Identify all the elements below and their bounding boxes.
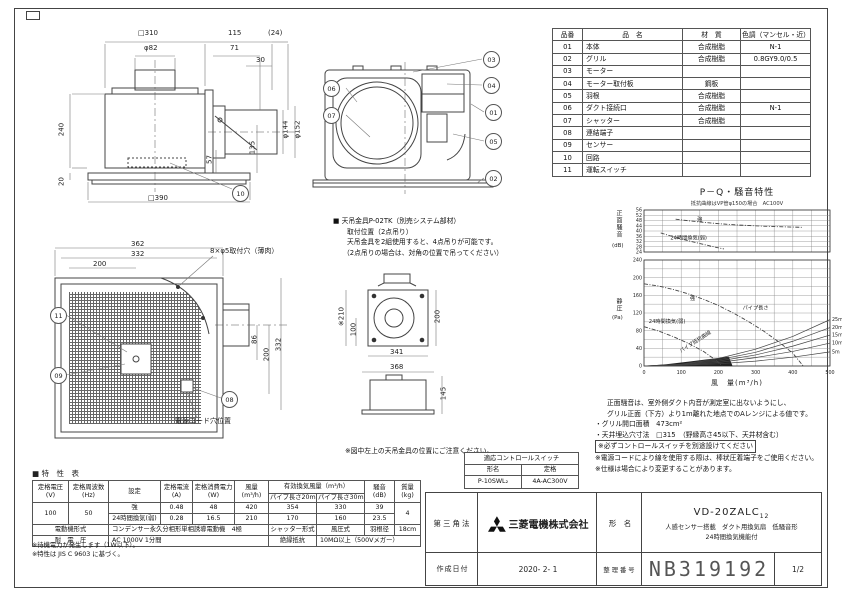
mount-view-linework [338, 272, 468, 450]
spec-cell: 50 [69, 503, 109, 525]
section-view-linework [295, 42, 540, 217]
spec-cell: 0.28 [161, 514, 193, 525]
parts-cell [683, 151, 741, 163]
pipe-label: 20m [832, 325, 842, 331]
parts-cell: N-1 [741, 102, 811, 114]
chart-note-6: ※電源コードにより線を使用する際は、棒状圧着端子をご使用ください。 [595, 453, 839, 464]
pressure-ytick: 80 [636, 328, 642, 334]
noise-axis-label: 正面騒音 [614, 210, 623, 238]
date-label: 作成日付 [437, 564, 469, 574]
model-cell: VD-20ZALC12 人感センサー搭載 ダクト用換気扇 低騒音形 24時間換気… [641, 492, 822, 555]
spec-cell: 18cm [395, 525, 421, 536]
drawing-sheet: { "parts_table": { "headers": ["品番", "品 … [0, 0, 842, 595]
spec-cell: 420 [235, 503, 269, 514]
model-label-cell: 形 名 [596, 492, 644, 555]
title-block: 第三角法 三菱電機株式会社 形 名 VD-20ZALC12 人感センサー搭載 ダ… [425, 492, 820, 584]
parts-row: 01本体合成樹脂N-1 [553, 41, 811, 53]
parts-cell: 合成樹脂 [683, 115, 741, 127]
parts-cell: センサー [583, 139, 683, 151]
number-label-cell: 整理番号 [596, 552, 644, 586]
parts-row: 07シャッター合成樹脂 [553, 115, 811, 127]
parts-table: 品番品 名材 質色調（マンセル・近）01本体合成樹脂N-102グリル合成樹脂0.… [552, 28, 811, 177]
parts-cell [741, 90, 811, 102]
spec-data-row: 10050強0.4848420354330394 [33, 503, 421, 514]
xtick: 500 [825, 370, 834, 376]
chart-annotation-0: パイプ長さ [743, 304, 769, 311]
spec-cell: コンデンサー永久分相形単相誘導電動機 4極 [109, 525, 269, 536]
company-cell: 三菱電機株式会社 [477, 492, 599, 555]
spec-table: 定格電圧(V)定格周波数(Hz)設定定格電流(A)定格消費電力(W)風量(m³/… [32, 480, 421, 547]
chart-note-7: ※仕様は場合により変更することがあります。 [595, 464, 839, 475]
pipe-label: 25m [832, 317, 842, 323]
parts-cell: 合成樹脂 [683, 41, 741, 53]
spec-cell: 定格電流(A) [161, 481, 193, 503]
parts-cell: 08 [553, 127, 583, 139]
parts-row: 03モーター [553, 65, 811, 77]
pressure-ytick: 120 [633, 311, 642, 317]
chart-title: P－Q・騒音特性 [700, 186, 775, 198]
spec-cell: 330 [317, 503, 365, 514]
company-name: 三菱電機株式会社 [509, 516, 589, 531]
dim-362: 362 [131, 241, 144, 248]
spec-cell: 23.5 [365, 514, 395, 525]
chart-notes: 正面騒音は、室外側ダクト内音が測定室に出ないようにし、 グリル正面（下方）より1… [595, 398, 839, 474]
pressure-ytick: 0 [639, 364, 642, 370]
spec-cell: 210 [235, 514, 269, 525]
side-view-dim-lines [70, 42, 295, 202]
balloon-09: 09 [50, 367, 67, 384]
balloon-10: 10 [232, 185, 249, 202]
spec-cell: 10MΩ以上（500Vメガー） [317, 536, 421, 547]
parts-cell: 合成樹脂 [683, 102, 741, 114]
spec-cell: 定格電圧(V) [33, 481, 69, 503]
parts-cell [683, 139, 741, 151]
grille-view-drawing: 362 332 200 8×φ5取付穴（薄肉） 86 200 332 11 09… [35, 240, 305, 454]
chart-subtitle: 抵抗曲線はVP管φ150の場合 AC100V [691, 199, 784, 207]
balloon-07: 07 [323, 107, 340, 124]
parts-cell: 本体 [583, 41, 683, 53]
pressure-ytick: 240 [633, 258, 642, 264]
spec-cell: シャッター形式 [269, 525, 317, 536]
parts-row: 05羽根合成樹脂 [553, 90, 811, 102]
grille-dim-lines [55, 248, 281, 418]
xaxis-label: 風 量(m³/h) [711, 379, 763, 387]
balloon-02: 02 [485, 170, 502, 187]
spec-cell: 騒音(dB) [365, 481, 395, 503]
spec-cell: 354 [269, 503, 317, 514]
spec-motor-row: 電動機形式コンデンサー永久分相形単相誘導電動機 4極シャッター形式風圧式羽根径1… [33, 525, 421, 536]
parts-cell: 03 [553, 65, 583, 77]
parts-cell: N-1 [741, 41, 811, 53]
parts-row: 10回路 [553, 151, 811, 163]
spec-note-2: ※特性は JIS C 9603 に基づく。 [32, 550, 139, 559]
bracket-note-line1: ■ 天吊金具P-02TK（別売システム部材） [333, 216, 593, 227]
spec-table-title: ■ 特 性 表 [32, 470, 79, 478]
parts-cell [741, 127, 811, 139]
bracket-note-line4: （2点吊りの場合は、対角の位置で吊ってください） [333, 248, 593, 259]
balloon-08: 08 [221, 391, 238, 408]
balloon-05: 05 [485, 133, 502, 150]
spec-cell: 設定 [109, 481, 161, 503]
spec-note-1: ※待機電力が発生します（1W以下）。 [32, 541, 139, 550]
bracket-note: ■ 天吊金具P-02TK（別売システム部材） 取付位置（2点吊り） 天吊金具を2… [333, 216, 593, 258]
spec-cell: 風圧式 [317, 525, 365, 536]
pq-series-0-label: 強 [690, 294, 696, 302]
parts-row: 09センサー [553, 139, 811, 151]
control-switch-table: 適応コントロールスイッチ 形名 定格 P-10SWL₂ 4A-AC300V [464, 452, 579, 489]
noise-series-0-label: 強 [697, 215, 703, 223]
bracket-note-line2: 取付位置（2点吊り） [333, 227, 593, 238]
spec-cell: 質量(kg) [395, 481, 421, 503]
spec-cell: 100 [33, 503, 69, 525]
corner-mark [26, 11, 40, 20]
parts-cell: 羽根 [583, 90, 683, 102]
pressure-ytick: 200 [633, 275, 642, 281]
projection-label: 第三角法 [434, 518, 472, 529]
spec-cell: 24時間換気(弱) [109, 514, 161, 525]
spec-header-row: 定格電圧(V)定格周波数(Hz)設定定格電流(A)定格消費電力(W)風量(m³/… [33, 481, 421, 494]
spec-cell: 0.48 [161, 503, 193, 514]
parts-cell: 04 [553, 78, 583, 90]
parts-cell: 07 [553, 115, 583, 127]
pq-chart: P－Q・騒音特性抵抗曲線はVP管φ150の場合 AC100V5652484440… [612, 186, 842, 402]
parts-cell: 品 名 [583, 29, 683, 41]
mount-holes-label: 8×φ5取付穴（薄肉） [210, 248, 278, 255]
model-label: 形 名 [609, 518, 632, 529]
spec-cell: 風量(m³/h) [235, 481, 269, 503]
spec-cell: 強 [109, 503, 161, 514]
parts-cell [741, 151, 811, 163]
parts-cell: ダクト接続口 [583, 102, 683, 114]
model-desc-1: 人感センサー搭載 ダクト用換気扇 低騒音形 [665, 522, 797, 531]
parts-cell: 材 質 [683, 29, 741, 41]
parts-cell: 01 [553, 41, 583, 53]
pressure-axis-label: 静圧 [614, 298, 623, 312]
parts-row: 11運転スイッチ [553, 164, 811, 176]
control-switch-rating: 4A-AC300V [522, 476, 579, 489]
xtick: 400 [788, 370, 797, 376]
balloon-06: 06 [323, 80, 340, 97]
parts-cell: 合成樹脂 [683, 90, 741, 102]
parts-cell: シャッター [583, 115, 683, 127]
parts-cell: 05 [553, 90, 583, 102]
chart-note-2: グリル正面（下方）より1m離れた地点でのAレンジによる値です。 [595, 409, 839, 420]
control-switch-title: 適応コントロールスイッチ [465, 453, 579, 465]
side-view-linework [50, 30, 300, 225]
parts-cell: 09 [553, 139, 583, 151]
date-cell: 2020- 2- 1 [477, 552, 599, 586]
projection-cell: 第三角法 [425, 492, 480, 555]
parts-cell [683, 127, 741, 139]
grille-notch-fill [161, 278, 225, 334]
spec-cell: 電動機形式 [33, 525, 109, 536]
spec-cell: 170 [269, 514, 317, 525]
spec-cell: 絶縁抵抗 [269, 536, 317, 547]
date-label-cell: 作成日付 [425, 552, 480, 586]
xtick: 0 [642, 370, 645, 376]
parts-cell: グリル [583, 53, 683, 65]
chart-note-1: 正面騒音は、室外側ダクト内音が測定室に出ないようにし、 [595, 398, 839, 409]
spec-cell: 定格消費電力(W) [193, 481, 235, 503]
parts-cell: 運転スイッチ [583, 164, 683, 176]
section-view-drawing: 06 07 03 04 01 05 02 [295, 42, 540, 217]
noise-ytick: 32 [636, 239, 642, 245]
balloon-11: 11 [50, 307, 67, 324]
spec-cell: パイプ長さ30m時 [317, 494, 365, 503]
parts-row: 02グリル合成樹脂0.8GY9.0/0.5 [553, 53, 811, 65]
noise-axis-unit: (dB) [612, 244, 624, 250]
noise-ytick: 40 [636, 229, 642, 235]
spec-cell: パイプ長さ20m時 [269, 494, 317, 503]
mitsubishi-logo-icon [488, 516, 506, 532]
page-cell: 1/2 [774, 552, 822, 586]
parts-header-row: 品番品 名材 質色調（マンセル・近） [553, 29, 811, 41]
balloon-01: 01 [485, 104, 502, 121]
noise-ytick: 28 [636, 244, 642, 250]
spec-cell: 羽根径 [365, 525, 395, 536]
control-switch-model: P-10SWL₂ [465, 476, 522, 489]
chart-note-3: ・グリル開口面積 473cm² [595, 419, 839, 430]
spec-cell: 160 [317, 514, 365, 525]
parts-cell: 02 [553, 53, 583, 65]
model-desc-2: 24時間換気機能付 [705, 532, 757, 541]
mount-view-drawing: ※210 100 200 341 368 145 [338, 272, 468, 450]
side-view-outline [88, 70, 277, 184]
cord-hole-label: 電源コード穴位置 [175, 418, 231, 425]
dim-332: 332 [131, 251, 144, 258]
xtick: 200 [714, 370, 723, 376]
control-switch-col1: 形名 [465, 465, 522, 476]
parts-cell [683, 65, 741, 77]
dim-200: 200 [93, 261, 106, 268]
section-view-outline [313, 66, 493, 187]
drawing-number: NB319192 [649, 557, 769, 581]
noise-ytick: 44 [636, 223, 642, 229]
number-cell: NB319192 [641, 552, 777, 586]
parts-cell [683, 164, 741, 176]
parts-cell: 10 [553, 151, 583, 163]
spec-notes: ※待機電力が発生します（1W以下）。 ※特性は JIS C 9603 に基づく。 [32, 541, 139, 559]
parts-cell: 品番 [553, 29, 583, 41]
spec-cell: 有効換気風量（m³/h） [269, 481, 365, 494]
date-value: 2020- 2- 1 [519, 565, 558, 574]
spec-cell: 定格周波数(Hz) [69, 481, 109, 503]
noise-ytick: 48 [636, 218, 642, 224]
parts-cell: モーター [583, 65, 683, 77]
noise-ytick: 24 [636, 250, 642, 256]
parts-cell: 0.8GY9.0/0.5 [741, 53, 811, 65]
side-view-drawing: □310 φ82 115 (24) 71 30 240 20 □390 φ144… [50, 30, 300, 225]
pressure-axis-unit: (Pa) [612, 316, 623, 322]
parts-cell: 回路 [583, 151, 683, 163]
parts-row: 06ダクト接続口合成樹脂N-1 [553, 102, 811, 114]
pq-series-1-label: 24時間換気(弱) [649, 317, 686, 325]
parts-cell [741, 115, 811, 127]
noise-ytick: 52 [636, 213, 642, 219]
chart-note-5: ※必ずコントロールスイッチを別途設けてください [595, 440, 756, 453]
number-label: 整理番号 [603, 565, 636, 574]
parts-cell: 色調（マンセル・近） [741, 29, 811, 41]
control-switch-col2: 定格 [522, 465, 579, 476]
pipe-label: 5m [832, 349, 840, 355]
pressure-ytick: 160 [633, 293, 642, 299]
parts-cell [741, 139, 811, 151]
spec-cell: 39 [365, 503, 395, 514]
noise-ytick: 36 [636, 234, 642, 240]
balloon-03: 03 [483, 51, 500, 68]
parts-cell: 連結端子 [583, 127, 683, 139]
parts-cell: 06 [553, 102, 583, 114]
bracket-note-line3: 天吊金具を2組使用すると、4点吊りが可能です。 [333, 237, 593, 248]
parts-cell: 鋼板 [683, 78, 741, 90]
pipe-label: 15m [832, 333, 842, 339]
parts-cell: 11 [553, 164, 583, 176]
spec-cell: 16.5 [193, 514, 235, 525]
xtick: 100 [677, 370, 686, 376]
spec-cell: 48 [193, 503, 235, 514]
pq-chart-svg: P－Q・騒音特性抵抗曲線はVP管φ150の場合 AC100V5652484440… [612, 186, 842, 402]
parts-row: 04モーター取付板鋼板 [553, 78, 811, 90]
xtick: 300 [751, 370, 760, 376]
chart-note-4: ・天井埋込穴寸法 □315 （野縁高さ45以下、天井材含む） [595, 430, 839, 441]
balloon-04: 04 [483, 77, 500, 94]
parts-row: 08連結端子 [553, 127, 811, 139]
pressure-ytick: 40 [636, 346, 642, 352]
parts-cell: モーター取付板 [583, 78, 683, 90]
noise-ytick: 56 [636, 208, 642, 214]
pipe-label: 10m [832, 341, 842, 347]
grille-view-linework [35, 240, 305, 454]
noise-series-1-label: 24時間換気(弱) [670, 234, 707, 242]
mount-bolts [372, 294, 425, 343]
model-name: VD-20ZALC12 [694, 507, 770, 520]
parts-cell: 合成樹脂 [683, 53, 741, 65]
spec-cell: 4 [395, 503, 421, 525]
parts-cell [741, 65, 811, 77]
parts-cell [741, 164, 811, 176]
page-number: 1/2 [792, 565, 804, 574]
parts-cell [741, 78, 811, 90]
